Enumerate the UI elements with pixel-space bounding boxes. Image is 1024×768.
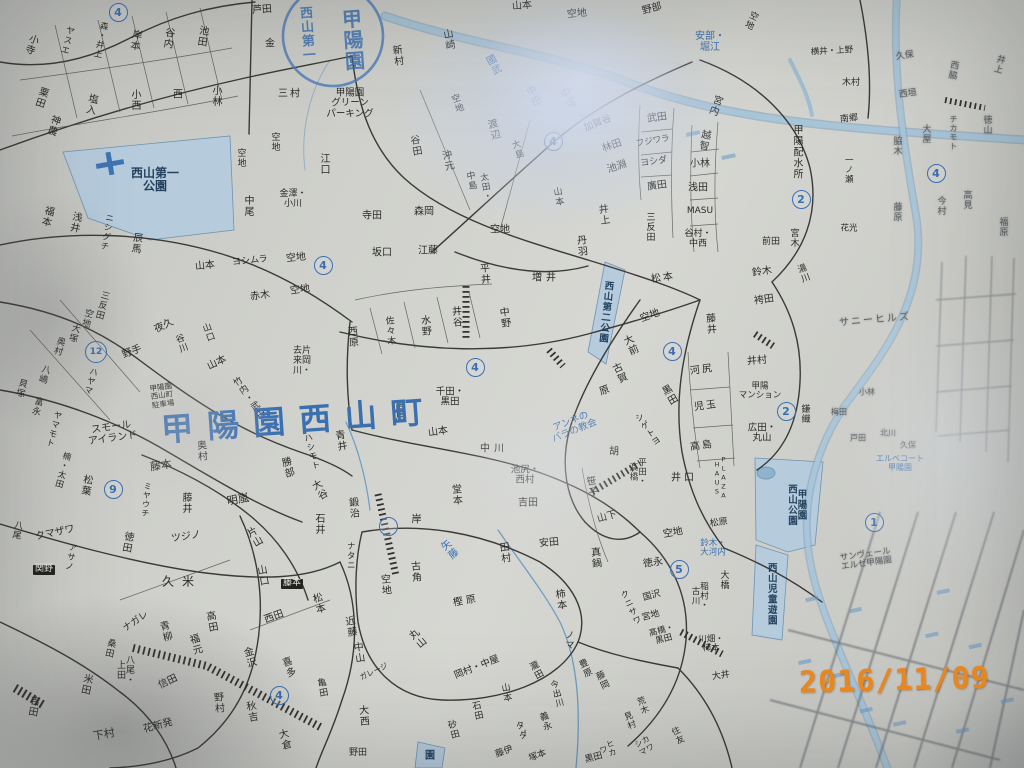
map-label: 西山児童遊園 <box>766 563 776 626</box>
map-label: 西脇 <box>946 59 958 80</box>
map-label: 黒田 <box>658 384 678 408</box>
map-label: 中川 <box>480 444 508 455</box>
map-label: 田野 <box>347 744 365 760</box>
map-label: 稲村・ 古川 <box>691 582 708 611</box>
map-label: 中尾 <box>242 195 252 217</box>
map-label: 江口 <box>318 153 328 175</box>
map-label: 徳田 <box>119 530 133 553</box>
map-label: 西垣 <box>898 89 917 101</box>
map-label: 武田 <box>646 111 667 125</box>
map-label: サニーヒルズ <box>839 311 912 328</box>
map-label: ナガレ <box>121 610 150 635</box>
map-label: 鎌織 <box>800 404 809 424</box>
map-label: クニサワ <box>618 589 642 627</box>
map-label: 西馬 <box>394 401 403 421</box>
map-label: 花新発 <box>142 717 174 735</box>
map-label: MASU <box>687 207 713 217</box>
map-label: 塩入 <box>83 92 97 116</box>
map-label: 小西 <box>129 89 139 111</box>
map-label: 芦田 <box>252 4 273 16</box>
map-label: 空地 <box>662 526 684 540</box>
map-label: 青井 <box>332 429 346 452</box>
map-label: 久保 <box>900 442 916 451</box>
map-label: 下村 <box>92 727 116 743</box>
map-label: 大谷 <box>308 479 328 503</box>
map-label: 夜久 <box>153 317 176 335</box>
map-label: フジワラ <box>635 134 670 149</box>
map-label: 野部 <box>641 1 663 17</box>
map-label: 渡辺 <box>484 118 499 142</box>
map-label: スモール アイランド <box>86 419 138 448</box>
map-label: 中田 <box>523 85 541 109</box>
map-label: 片岡・ 去来川 <box>291 345 309 375</box>
map-label: 井上 <box>596 203 609 226</box>
map-label: 黒田 <box>584 752 604 766</box>
map-label: 平井 <box>477 263 489 286</box>
map-label: 山本 <box>499 682 511 703</box>
map-label: 梅田 <box>831 409 847 418</box>
map-label: 明嵐 <box>226 492 250 508</box>
map-label: 空地 <box>270 132 279 152</box>
map-label: 森岡 <box>414 207 434 218</box>
map-label: 井谷 <box>449 306 461 329</box>
map-label: 大西 <box>356 705 368 728</box>
map-label: 三反田 <box>93 289 109 320</box>
map-label: 湯川 <box>794 263 809 285</box>
map-label: 平田・ 髙橋 <box>629 458 646 487</box>
circled-number: 4 <box>466 358 485 377</box>
map-label: 千田・ 黒田 <box>436 388 465 409</box>
map-label: ヤマモト <box>44 410 62 449</box>
map-label: 住友 <box>669 726 685 747</box>
map-photo: 小寺ヤスエ森・井上岸本谷内池田芦田金三村粟田塩入小西西小林神農西山第一 公園空地… <box>0 0 1024 768</box>
map-label: PLAZA HAUS <box>714 456 727 501</box>
map-label: 近藤 <box>342 615 356 638</box>
map-label: 福元 <box>186 633 201 657</box>
map-label: 青柳 <box>156 620 171 644</box>
map-label: クマザワ <box>34 523 75 542</box>
map-label: 空地 <box>378 574 390 597</box>
map-label: 一ノ瀬 <box>844 156 853 185</box>
map-label: 鍛治 <box>346 497 358 520</box>
map-label: ヨシダ <box>640 156 668 170</box>
map-label: 袴田 <box>753 293 774 307</box>
map-label: 大屋 <box>921 124 930 144</box>
map-label: 甲陽園 西山公園 <box>787 484 806 526</box>
map-label: 柿本 <box>553 588 566 611</box>
map-label: 関野 <box>33 565 55 575</box>
map-label: 藤本 <box>149 458 172 473</box>
area-title: 甲陽園西山町 <box>160 394 438 448</box>
stamp-text-main: 甲陽園 <box>340 8 364 72</box>
map-label: ミヤウチ <box>140 482 151 519</box>
map-label: 今村 <box>936 196 945 216</box>
map-label: 竹内・武田 <box>230 376 266 422</box>
map-label: 金沢 <box>240 646 255 670</box>
circled-number <box>379 517 398 536</box>
map-label: 沖元 <box>439 149 453 173</box>
map-label: 宮地 <box>641 610 661 624</box>
map-label: 吉田 <box>518 498 538 509</box>
map-label: 増井 <box>532 273 560 284</box>
map-label: 井口 <box>671 473 697 484</box>
map-label: 砂田 <box>445 719 459 741</box>
map-label: 池尻・ 西村 <box>511 466 540 487</box>
map-label: 亀田 <box>315 677 327 698</box>
map-label: 丹羽 <box>574 235 586 258</box>
circled-number: 9 <box>104 480 123 499</box>
map-label: 空地 <box>79 307 93 329</box>
map-label: チカモト <box>949 115 957 151</box>
map-label: 安部・ 堀江 <box>695 31 725 53</box>
map-label: 松葉 <box>78 473 92 496</box>
map-label: 丸山 <box>405 628 427 651</box>
map-label: 大倉 <box>275 728 290 752</box>
map-label: 大前 <box>620 334 638 358</box>
map-label: 石田 <box>470 700 483 721</box>
map-label: ノマ <box>564 630 573 650</box>
map-label: 神農 <box>44 113 60 137</box>
map-label: 藤岡 <box>593 670 610 692</box>
map-label: 松本 <box>309 592 324 616</box>
labels-layer: 小寺ヤスエ森・井上岸本谷内池田芦田金三村粟田塩入小西西小林神農西山第一 公園空地… <box>0 0 1024 768</box>
circled-number: 12 <box>85 341 107 363</box>
map-label: 笹子 <box>583 475 597 498</box>
circled-number: 4 <box>314 256 333 275</box>
map-label: 池淵 <box>606 159 628 176</box>
map-label: 谷内 <box>161 26 174 49</box>
map-label: 浅田 <box>688 183 708 194</box>
map-label: ガレージ <box>359 662 390 682</box>
map-label: 藤原 <box>892 202 901 222</box>
map-label: カワシマ <box>632 732 657 759</box>
map-label: ナタニ <box>346 542 355 571</box>
map-label: 山本 <box>194 259 215 272</box>
map-label: ヒカワ <box>597 738 617 760</box>
map-label: 福本 <box>38 204 53 228</box>
map-label: 金澤・ 小川 <box>279 190 306 210</box>
map-label: 喜多 <box>279 656 296 680</box>
map-label: 赤木 <box>249 289 270 303</box>
map-label: 岸 <box>409 514 419 525</box>
map-label: 寺田 <box>362 211 382 222</box>
circled-number: 4 <box>109 3 128 22</box>
circled-number: 4 <box>927 164 946 183</box>
map-label: 片山 <box>243 526 263 550</box>
map-label: 児玉 <box>693 399 718 413</box>
map-label: ハシモト <box>302 433 320 472</box>
map-label: 松原 <box>709 518 728 530</box>
map-label: 信田 <box>157 673 180 691</box>
map-label: 高見 <box>962 190 971 210</box>
map-label: 空地 <box>567 8 588 21</box>
map-label: 豊原 <box>576 658 593 680</box>
map-label: 木村 <box>842 79 860 89</box>
map-label: 空地 <box>639 307 662 324</box>
map-label: 南郷 <box>840 114 859 125</box>
map-label: 中山 <box>351 641 364 664</box>
map-label: 谷田 <box>407 134 421 157</box>
map-label: 瀧田 <box>526 660 543 682</box>
map-label: アンネの バラの教会 <box>547 408 599 445</box>
map-label: 岡村・中屋 <box>453 654 501 681</box>
map-label: 石井 <box>313 513 323 535</box>
map-label: 米田 <box>78 672 92 696</box>
map-label: 桑田 <box>103 637 116 658</box>
map-label: 古賀 <box>609 362 627 386</box>
map-label: 森・井上 <box>92 21 108 60</box>
map-label: 八嶋 <box>36 363 50 385</box>
map-label: 金 <box>265 39 275 50</box>
map-label: 西原 <box>345 326 357 349</box>
map-label: 横井・上野 <box>811 46 854 58</box>
map-label: 胡 <box>609 447 619 458</box>
map-label: 井村 <box>747 355 768 368</box>
map-label: 大塚 <box>66 322 80 344</box>
map-label: 甲陽 マンション <box>739 383 782 402</box>
map-label: 粟田 <box>32 85 48 109</box>
map-label: 山本 <box>206 354 229 372</box>
map-label: 松本 <box>650 271 675 285</box>
circled-number: 1 <box>865 513 884 532</box>
map-label: サンヴェール エルゼ甲陽園 <box>839 547 892 573</box>
map-label: 野村 <box>211 692 223 715</box>
map-label: 岸本 <box>127 28 141 51</box>
map-label: 谷川 <box>172 333 187 355</box>
map-label: 八尾・ 上田 <box>115 655 133 685</box>
map-label: 高島 <box>689 439 714 453</box>
map-label: ツジノ <box>170 529 201 544</box>
map-label: 川畑・ 柿本 <box>698 636 724 655</box>
map-label: 富永 <box>29 395 43 417</box>
map-label: 真鍋 <box>588 547 600 570</box>
map-label: 田村 <box>497 541 510 564</box>
map-label: 荒木 <box>635 696 649 717</box>
map-label: 坂口 <box>372 248 392 259</box>
map-label: 樫原 <box>452 593 480 608</box>
map-label: アサノ <box>63 542 76 572</box>
map-label: 中野 <box>497 306 510 329</box>
map-label: 宮木 <box>789 228 798 248</box>
map-label: 鈴木 <box>751 265 772 279</box>
circled-number: 2 <box>777 402 796 421</box>
map-label: 甲陽配水所 <box>791 125 801 180</box>
map-label: タダ <box>513 720 528 742</box>
map-label: 八尾 <box>10 519 22 540</box>
map-label: 空地 <box>490 225 510 236</box>
map-label: 久米 <box>162 575 202 588</box>
map-label: 義永 <box>537 711 552 733</box>
map-label: 大橋 <box>719 570 728 590</box>
map-label: 古角 <box>408 561 420 584</box>
map-label: 林田 <box>601 137 624 154</box>
date-stamp: 2016/11/09 <box>799 661 990 701</box>
map-label: 脇木 <box>892 136 901 156</box>
map-label: 空地 <box>289 283 310 297</box>
map-label: 山本 <box>512 0 533 12</box>
map-label: 広田・ 丸山 <box>748 424 777 445</box>
map-label: 小林 <box>210 85 220 107</box>
map-label: 見村 <box>622 711 636 732</box>
map-label: 廣田 <box>646 179 667 193</box>
map-label: 山下 <box>596 509 618 525</box>
map-label: 鈴木・ 大河内 <box>700 540 726 559</box>
map-label: 山口 <box>254 564 268 587</box>
map-label: エルベコート 甲陽園 <box>876 455 924 473</box>
map-label: 今出川 <box>548 679 564 709</box>
map-label: 北川 <box>880 430 896 439</box>
map-label: 高田 <box>203 610 217 633</box>
map-label: 福原 <box>998 217 1007 237</box>
map-label: 井上 <box>991 53 1005 75</box>
map-label: 辰馬 <box>129 231 142 254</box>
map-label: 楠・太田 <box>53 451 71 490</box>
map-label: 小寺 <box>22 32 39 56</box>
map-label: 藤本 <box>281 579 303 589</box>
circled-number: 4 <box>270 686 289 705</box>
map-label: 矢藤 <box>437 539 459 562</box>
map-label: 山口 <box>199 322 214 344</box>
map-label: 三反田 <box>645 212 654 242</box>
map-label: 山崎 <box>440 28 454 51</box>
map-label: 谷村・ 中西 <box>684 230 711 250</box>
circled-number: 5 <box>670 560 689 579</box>
map-label: 国沢 <box>642 590 662 604</box>
map-label: 徳山 <box>982 115 991 135</box>
map-label: 西山第一 公園 <box>131 167 179 193</box>
map-label: 太田・ <box>478 172 491 202</box>
map-label: 前田 <box>762 238 780 248</box>
circled-number: 4 <box>663 342 682 361</box>
map-label: ニシグチ <box>99 213 114 252</box>
map-label: 髙橋・ 黒田 <box>648 624 677 649</box>
map-label: 藤井 <box>703 313 715 336</box>
map-label: 大井 <box>711 671 730 683</box>
map-label: 野手 <box>121 343 144 360</box>
map-label: 國武 <box>482 54 501 78</box>
map-label: 佐々木 <box>383 316 395 347</box>
map-label: 甲陽園 グリーン パーキング <box>326 88 373 119</box>
map-label: 山本 <box>551 186 563 207</box>
map-label: 伊藤 <box>491 741 513 762</box>
map-label: 加賀谷 <box>583 114 613 134</box>
circled-number: 2 <box>792 190 811 209</box>
map-label: 河尻 <box>689 363 714 377</box>
map-label: 小林 <box>690 159 710 170</box>
map-label: 園 <box>425 751 435 762</box>
map-label: 甲陽園 西山町 駐車場 <box>149 382 175 410</box>
map-label: 久保 <box>895 51 914 63</box>
map-label: 西 <box>173 90 183 101</box>
map-label: ヨシムラ <box>232 255 268 269</box>
map-label: 奥村 <box>194 440 206 463</box>
map-label: 空地 <box>285 251 306 264</box>
map-label: 勝部 <box>278 456 293 480</box>
map-label: 藤井 <box>180 492 190 514</box>
map-label: 花光 <box>840 224 857 233</box>
map-label: 塚本 <box>528 749 548 764</box>
map-label: 戸田 <box>850 435 866 444</box>
map-label: 奥村 <box>51 335 65 357</box>
map-label: 吉田 <box>25 694 39 717</box>
map-label: シゲトヨ <box>633 412 662 448</box>
map-label: 空地 <box>742 9 759 31</box>
map-label: 小林 <box>859 389 875 398</box>
map-label: 空地 <box>448 93 463 115</box>
circled-number: 4 <box>544 132 563 151</box>
map-label: 徳永 <box>642 556 663 570</box>
map-label: 宮内 <box>706 93 723 117</box>
map-label: 池田 <box>195 24 208 47</box>
map-label: 原 <box>595 384 608 398</box>
map-label: 浅井 <box>67 210 81 234</box>
map-label: 三村 <box>278 89 302 100</box>
map-label: 西山第二公園 <box>597 280 613 344</box>
map-label: 山本 <box>427 425 448 439</box>
map-label: 空地 <box>236 148 245 168</box>
map-label: 大島 <box>509 139 524 161</box>
map-label: 江藤 <box>418 246 438 257</box>
map-label: 堂本 <box>449 484 461 507</box>
map-label: ヤスエ <box>58 24 74 55</box>
map-label: 中堀 <box>557 87 575 111</box>
map-label: 西田 <box>263 608 286 625</box>
map-label: 中島 <box>464 170 476 191</box>
map-label: 水野 <box>418 315 430 338</box>
stamp-text-sub: 西山第一 <box>298 6 315 63</box>
map-label: 新村 <box>390 44 403 67</box>
map-label: ハヤマ <box>82 366 98 396</box>
map-label: 安田 <box>539 537 560 550</box>
map-label: 貝塚 <box>13 377 27 399</box>
map-label: 越智 <box>696 128 710 151</box>
map-label: 秋吉 <box>243 700 257 723</box>
